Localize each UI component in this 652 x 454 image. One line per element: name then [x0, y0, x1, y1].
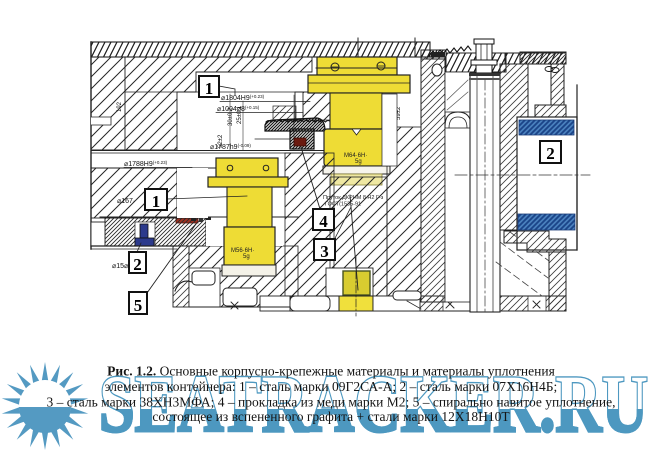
- svg-text:52±2: 52±2: [218, 134, 224, 148]
- svg-text:ГОСТ(1535-91: ГОСТ(1535-91: [325, 202, 361, 208]
- svg-text:⌀15⌀: ⌀15⌀: [112, 263, 128, 270]
- svg-text:Рис. 1.2. Основные корпусно-кр: Рис. 1.2. Основные корпусно-крепежные ма…: [107, 364, 555, 379]
- svg-text:⌀1788H9(+0.23): ⌀1788H9(+0.23): [124, 160, 168, 168]
- svg-text:192: 192: [117, 101, 123, 112]
- svg-text:Пруток ДКРНМ 8 Н2 Г-з: Пруток ДКРНМ 8 Н2 Г-з: [323, 195, 384, 201]
- svg-text:⌀1787h9(-0.09): ⌀1787h9(-0.09): [210, 143, 251, 151]
- svg-text:1: 1: [205, 79, 214, 98]
- svg-text:3 – сталь марки 38ХН3МФА; 4 –: 3 – сталь марки 38ХН3МФА; 4 – прокладка …: [47, 395, 616, 410]
- svg-text:2: 2: [133, 255, 142, 274]
- svg-text:4: 4: [319, 212, 328, 231]
- svg-text:25±0.1: 25±0.1: [237, 105, 243, 124]
- svg-text:5: 5: [134, 296, 143, 315]
- svg-text:⌀167·: ⌀167·: [117, 198, 135, 205]
- svg-text:3: 3: [320, 242, 329, 261]
- svg-text:состоящее из вспененного графи: состоящее из вспененного графита + стали…: [152, 409, 510, 424]
- svg-text:элементов контейнера: 1 – стал: элементов контейнера: 1 – сталь марки 09…: [105, 379, 558, 394]
- svg-text:5g: 5g: [243, 254, 250, 260]
- svg-text:2: 2: [546, 144, 555, 163]
- svg-text:5g: 5g: [355, 159, 362, 165]
- svg-text:30±0.2: 30±0.2: [228, 107, 234, 126]
- svg-text:1: 1: [152, 192, 161, 211]
